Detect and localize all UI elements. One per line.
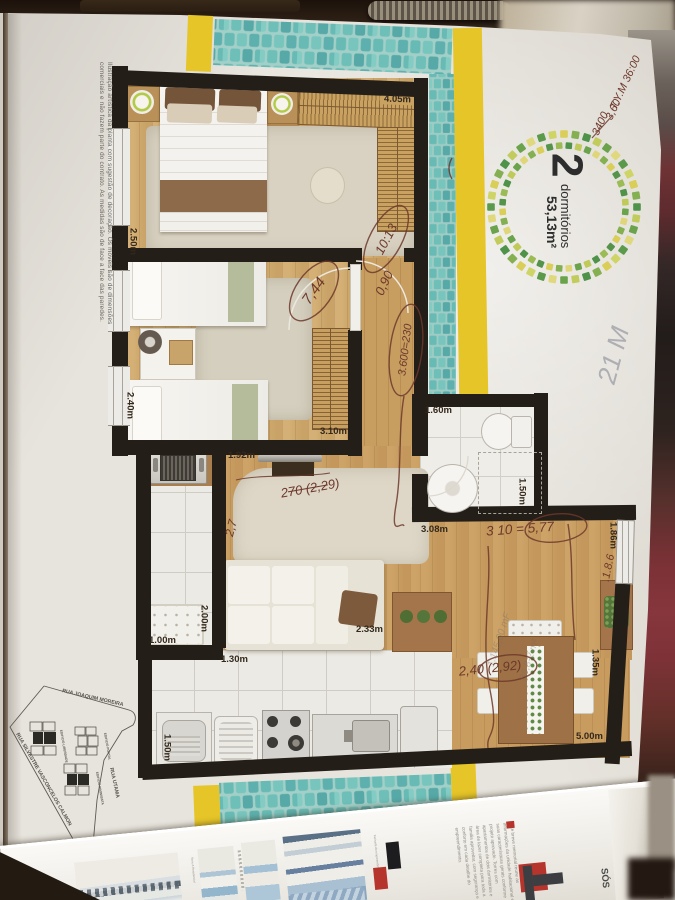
svg-text:RUA JOAQUIM MOREIRA: RUA JOAQUIM MOREIRA xyxy=(62,688,125,708)
svg-text:RUA UTAMA: RUA UTAMA xyxy=(108,767,120,799)
svg-text:EDIFICIO PONTAL: EDIFICIO PONTAL xyxy=(103,732,112,760)
svg-text:EDIFICIO LIBERDADE: EDIFICIO LIBERDADE xyxy=(59,729,69,762)
